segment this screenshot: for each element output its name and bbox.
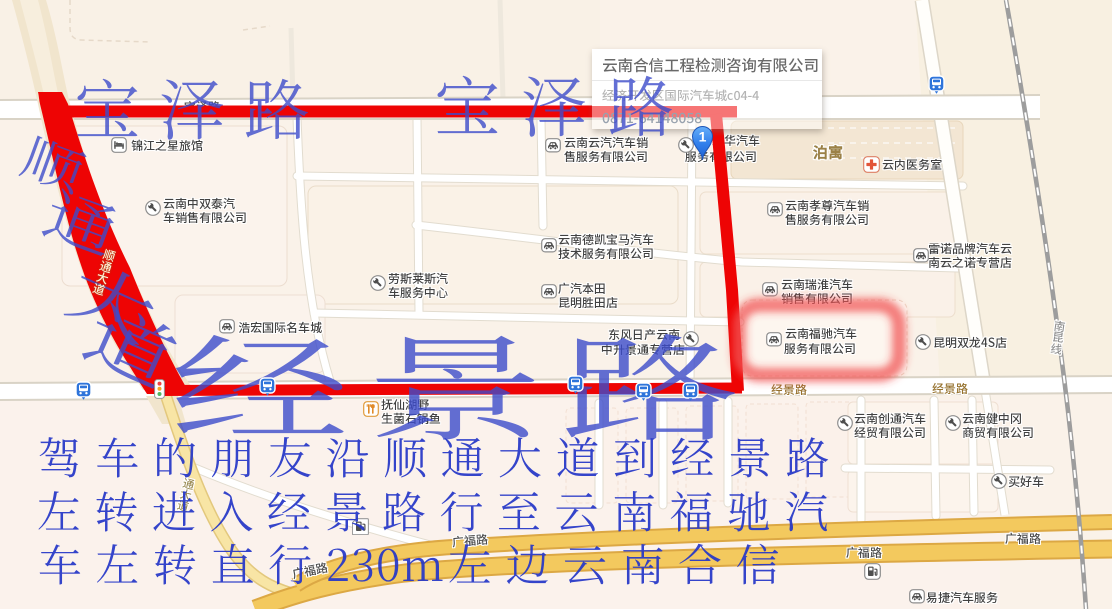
svg-text:1: 1 bbox=[699, 129, 707, 145]
